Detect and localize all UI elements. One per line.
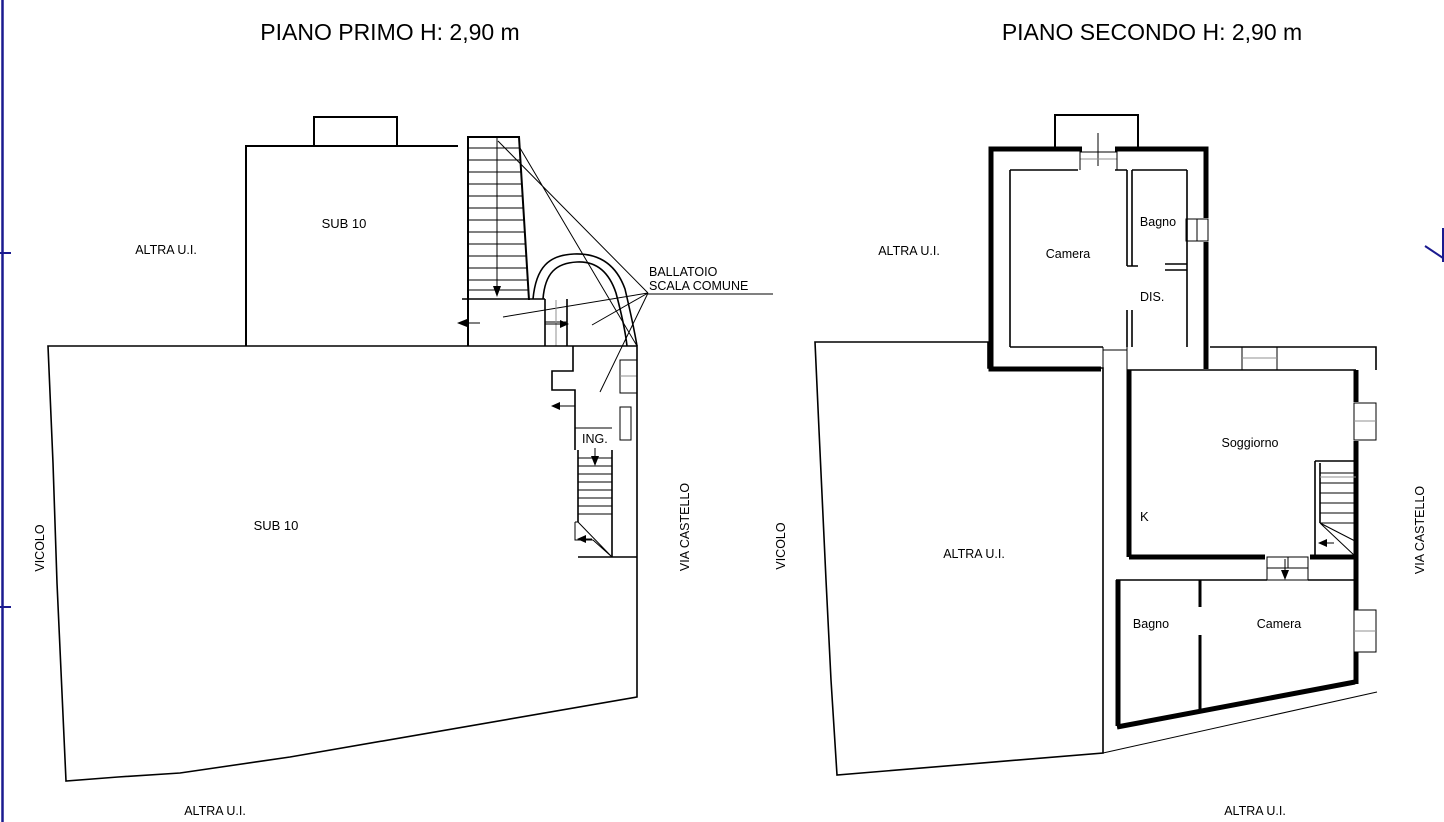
altra-ui-left-label: ALTRA U.I. [135, 243, 197, 257]
bagno-bottom-label: Bagno [1133, 617, 1169, 631]
left-plan-title: PIANO PRIMO H: 2,90 m [260, 19, 519, 45]
bagno-inner-walls [1132, 170, 1187, 347]
landing [457, 299, 569, 346]
left-plan: PIANO PRIMO H: 2,90 m SUB 10 BALLATOIO S… [33, 19, 773, 818]
chimney-outline [314, 117, 397, 146]
entry-stair-steps [578, 458, 612, 514]
sheet-border [0, 0, 1443, 822]
corridor-left-arrow [551, 402, 560, 410]
soggiorno-stair-winders [1320, 523, 1355, 556]
sheet-border-right-tick [1425, 246, 1443, 258]
stair-down-arrow [493, 286, 501, 297]
kitchen-label: K [1140, 509, 1149, 524]
vicolo-right-label: VICOLO [774, 522, 788, 570]
bagno-top-label: Bagno [1140, 215, 1176, 229]
wall-window-lower [620, 407, 631, 440]
upper-block-walls [991, 115, 1208, 373]
sub10-lower-label: SUB 10 [254, 518, 299, 533]
dis-label: DIS. [1140, 290, 1164, 304]
sub10-parcel-outline [48, 346, 637, 781]
entry-corridor [551, 346, 637, 466]
via-castello-right-label: VIA CASTELLO [1413, 486, 1427, 575]
soggiorno-stair-steps [1320, 473, 1356, 523]
ballatoio-label-line2: SCALA COMUNE [649, 279, 748, 293]
camera-top-label: Camera [1046, 247, 1091, 261]
altra-ui-main-label: ALTRA U.I. [943, 547, 1005, 561]
sub10-upper-label: SUB 10 [322, 216, 367, 231]
camera-bottom-label: Camera [1257, 617, 1302, 631]
lower-block-walls [1127, 347, 1376, 684]
bottom-rooms-walls [1116, 580, 1376, 727]
soggiorno-stair-arrow [1318, 539, 1327, 547]
ballatoio-railing-curves [533, 254, 637, 346]
ballatoio-leader-lines [503, 293, 773, 392]
upper-room-outline [246, 146, 458, 346]
bottom-door-opening [1103, 347, 1127, 373]
ballatoio-label-line1: BALLATOIO [649, 265, 718, 279]
floorplan-canvas: PIANO PRIMO H: 2,90 m SUB 10 BALLATOIO S… [0, 0, 1444, 822]
soggiorno-staircase [1315, 461, 1356, 557]
stair-steps [468, 160, 528, 290]
altra-ui-bottom-left-label: ALTRA U.I. [184, 804, 246, 818]
soggiorno-label: Soggiorno [1222, 436, 1279, 450]
camera-bagno-partition [1127, 170, 1138, 347]
bagno-dis-stub [1165, 264, 1187, 270]
entry-stair-arrow [577, 535, 586, 543]
ing-label: ING. [582, 432, 608, 446]
altra-ui-top-right-label: ALTRA U.I. [878, 244, 940, 258]
entry-staircase [575, 450, 637, 557]
altra-ui-bottom-right-label: ALTRA U.I. [1224, 804, 1286, 818]
vicolo-left-label: VICOLO [33, 524, 47, 572]
right-plan: PIANO SECONDO H: 2,90 m Camera Bagno DIS… [774, 19, 1427, 818]
chimney-outline-right [1055, 115, 1138, 149]
door-down-arrow [1281, 570, 1289, 580]
via-castello-left-label: VIA CASTELLO [678, 483, 692, 572]
right-plan-title: PIANO SECONDO H: 2,90 m [1002, 19, 1302, 45]
landing-left-arrow [457, 319, 467, 327]
